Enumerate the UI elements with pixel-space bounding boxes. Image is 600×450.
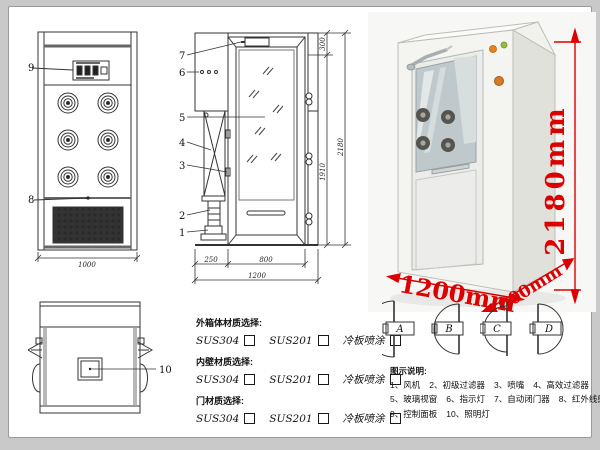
cabinet-door bbox=[412, 50, 483, 270]
side-dim-250: 250 bbox=[203, 256, 218, 264]
orange-indicator-light bbox=[490, 46, 497, 53]
material-group-title: 外箱体材质选择: bbox=[196, 316, 382, 329]
material-selection: 外箱体材质选择: SUS304 SUS201 冷板喷涂 内壁材质选择: SUS3… bbox=[196, 316, 382, 428]
top-view-drawing: 10 bbox=[28, 298, 178, 433]
material-group-title: 内壁材质选择: bbox=[196, 355, 382, 368]
photo-dim-height: 2180mm bbox=[541, 104, 571, 255]
material-option-label: 冷板喷涂 bbox=[343, 333, 385, 348]
product-photo: 2180mm 1200mm 1000mm bbox=[368, 12, 596, 312]
door-option-b: B bbox=[431, 298, 467, 360]
callout-5: 5 bbox=[179, 113, 185, 124]
front-nozzles bbox=[58, 93, 118, 187]
side-door bbox=[226, 37, 305, 245]
side-view-drawing: 7 6 5 4 3 2 1 300 1910 2180 250 800 1200 bbox=[175, 22, 357, 294]
side-left-column bbox=[195, 33, 228, 111]
material-checkbox[interactable] bbox=[318, 374, 329, 385]
door-handle bbox=[247, 211, 285, 215]
side-dim-1200: 1200 bbox=[248, 272, 266, 280]
legend-title: 图示说明: bbox=[390, 367, 592, 376]
door-option-d: D bbox=[529, 298, 565, 360]
door-swing-options: A B C bbox=[382, 298, 594, 364]
callout-6: 6 bbox=[179, 68, 185, 79]
side-dim-2180: 2180 bbox=[337, 138, 345, 157]
legend-row: 5、玻璃视窗 6、指示灯 7、自动闭门器 8、红外线感应器 bbox=[390, 395, 592, 404]
callout-7: 7 bbox=[179, 51, 185, 62]
legend-item: 2、初级过滤器 bbox=[429, 381, 485, 390]
material-checkbox[interactable] bbox=[318, 335, 329, 346]
side-right-wall bbox=[306, 33, 318, 245]
material-option-label: SUS201 bbox=[269, 335, 312, 347]
legend-item: 7、自动闭门器 bbox=[494, 395, 550, 404]
material-options-row: SUS304 SUS201 冷板喷涂 bbox=[196, 333, 382, 348]
round-button bbox=[495, 77, 504, 86]
right-handle bbox=[140, 364, 148, 392]
control-panel bbox=[73, 61, 109, 80]
front-view-drawing: 9 8 1000 bbox=[20, 26, 140, 270]
material-checkbox[interactable] bbox=[244, 413, 255, 424]
callout-2: 2 bbox=[179, 211, 185, 222]
callout-4: 4 bbox=[179, 138, 185, 149]
callout-3: 3 bbox=[179, 161, 185, 172]
door-option-c: C bbox=[480, 298, 516, 360]
front-grille bbox=[53, 207, 123, 243]
front-dim-1000: 1000 bbox=[78, 261, 96, 269]
material-options-row: SUS304 SUS201 冷板喷涂 bbox=[196, 411, 382, 426]
callout-10: 10 bbox=[159, 365, 172, 376]
side-dim-300: 300 bbox=[319, 37, 327, 51]
callout-8: 8 bbox=[28, 195, 34, 206]
door-option-letter: C bbox=[493, 324, 501, 335]
legend: 图示说明: 1、风机 2、初级过滤器 3、喷嘴 4、高效过滤器 5、玻璃视窗 6… bbox=[390, 367, 592, 424]
green-indicator-light bbox=[501, 42, 507, 48]
material-option-label: SUS304 bbox=[196, 413, 239, 425]
legend-row: 1、风机 2、初级过滤器 3、喷嘴 4、高效过滤器 bbox=[390, 381, 592, 390]
material-option-label: SUS304 bbox=[196, 335, 239, 347]
legend-item: 4、高效过滤器 bbox=[533, 381, 589, 390]
material-group-title: 门材质选择: bbox=[196, 394, 382, 407]
product-photo-render: 2180mm 1200mm 1000mm bbox=[368, 12, 596, 312]
material-checkbox[interactable] bbox=[244, 374, 255, 385]
legend-item: 8、红外线感应器 bbox=[559, 395, 600, 404]
material-option-label: 冷板喷涂 bbox=[343, 372, 385, 387]
material-options-row: SUS304 SUS201 冷板喷涂 bbox=[196, 372, 382, 387]
legend-item: 6、指示灯 bbox=[446, 395, 485, 404]
legend-item: 9、控制面板 bbox=[390, 410, 437, 419]
legend-item: 1、风机 bbox=[390, 381, 420, 390]
legend-item: 3、喷嘴 bbox=[494, 381, 524, 390]
material-checkbox[interactable] bbox=[318, 413, 329, 424]
left-handle bbox=[33, 364, 41, 392]
side-dim-1910: 1910 bbox=[319, 163, 327, 181]
legend-item: 10、照明灯 bbox=[446, 410, 489, 419]
door-option-letter: D bbox=[544, 324, 553, 335]
material-checkbox[interactable] bbox=[244, 335, 255, 346]
air-shower-spec-sheet: 9 8 1000 bbox=[0, 0, 600, 450]
door-option-letter: B bbox=[444, 324, 452, 335]
callout-9: 9 bbox=[28, 63, 34, 74]
side-dim-800: 800 bbox=[259, 256, 273, 264]
material-option-label: 冷板喷涂 bbox=[343, 411, 385, 426]
legend-row: 9、控制面板 10、照明灯 bbox=[390, 410, 592, 419]
side-fan-column bbox=[201, 111, 226, 240]
callout-1: 1 bbox=[179, 228, 185, 239]
legend-item: 5、玻璃视窗 bbox=[390, 395, 437, 404]
material-option-label: SUS201 bbox=[269, 374, 312, 386]
material-option-label: SUS304 bbox=[196, 374, 239, 386]
material-option-label: SUS201 bbox=[269, 413, 312, 425]
door-option-letter: A bbox=[395, 324, 403, 335]
door-option-a: A bbox=[382, 298, 418, 360]
